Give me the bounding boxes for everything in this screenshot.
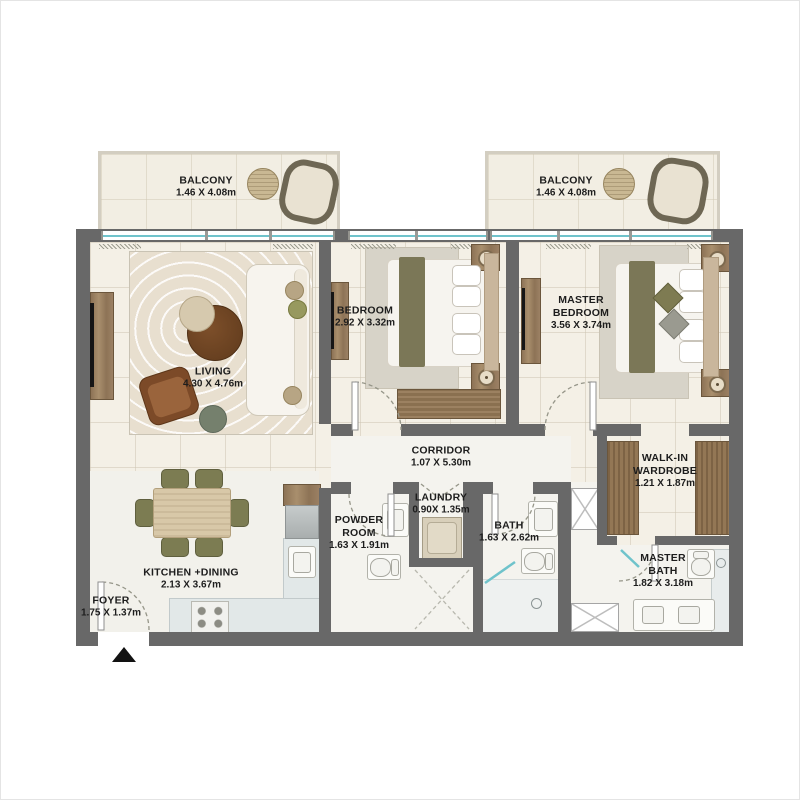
room-dims: 1.46 X 4.08m: [176, 187, 236, 200]
room-dims: 1.07 X 5.30m: [411, 457, 471, 470]
door-swing-overlay: [1, 1, 800, 800]
room-label-master-bedroom: MASTER BEDROOM 3.56 X 3.74m: [548, 294, 614, 332]
room-label-kitchen: KITCHEN +DINING 2.13 X 3.67m: [143, 566, 238, 591]
room-label-bath: BATH 1.63 X 2.62m: [479, 519, 539, 544]
room-dims: 2.13 X 3.67m: [143, 579, 238, 592]
room-label-corridor: CORRIDOR 1.07 X 5.30m: [411, 444, 471, 469]
room-label-walkin: WALK-IN WARDROBE 1.21 X 1.87m: [622, 452, 708, 490]
room-label-bedroom: BEDROOM 2.92 X 3.32m: [335, 304, 395, 329]
room-label-balcony-left: BALCONY 1.46 X 4.08m: [176, 174, 236, 199]
room-name: BALCONY: [176, 174, 236, 187]
room-name: BALCONY: [536, 174, 596, 187]
room-label-foyer: FOYER 1.75 X 1.37m: [81, 594, 141, 619]
room-name: MASTER BEDROOM: [548, 294, 614, 320]
room-dims: 1.63 X 1.91m: [324, 540, 394, 553]
room-name: FOYER: [81, 594, 141, 607]
room-name: LIVING: [183, 365, 243, 378]
room-dims: 2.92 X 3.32m: [335, 317, 395, 330]
room-dims: 1.82 X 3.18m: [626, 578, 700, 591]
room-dims: 1.75 X 1.37m: [81, 607, 141, 620]
room-dims: 0.90X 1.35m: [412, 504, 469, 517]
room-name: KITCHEN +DINING: [143, 566, 238, 579]
room-name: WALK-IN WARDROBE: [622, 452, 708, 478]
room-label-laundry: LAUNDRY 0.90X 1.35m: [412, 491, 469, 516]
master-door-leaf: [590, 382, 596, 430]
duct-void-cross: [415, 570, 469, 629]
room-dims: 1.46 X 4.08m: [536, 187, 596, 200]
room-name: BEDROOM: [335, 304, 395, 317]
room-label-powder: POWDER ROOM 1.63 X 1.91m: [324, 514, 394, 552]
entrance-arrow: [112, 647, 136, 662]
room-name: LAUNDRY: [412, 491, 469, 504]
master-door-arc: [545, 382, 593, 430]
room-name: CORRIDOR: [411, 444, 471, 457]
room-label-master-bath: MASTER BATH 1.82 X 3.18m: [626, 552, 700, 590]
bath-shower-door: [485, 562, 515, 583]
room-name: BATH: [479, 519, 539, 532]
floor-plan: BALCONY 1.46 X 4.08m BALCONY 1.46 X 4.08…: [0, 0, 800, 800]
room-name: MASTER BATH: [626, 552, 700, 578]
room-dims: 3.56 X 3.74m: [548, 320, 614, 333]
bedroom-door-arc: [355, 382, 401, 430]
room-dims: 1.63 X 2.62m: [479, 532, 539, 545]
bedroom-door-leaf: [352, 382, 358, 430]
room-label-living: LIVING 4.30 X 4.76m: [183, 365, 243, 390]
room-dims: 1.21 X 1.87m: [622, 478, 708, 491]
room-label-balcony-right: BALCONY 1.46 X 4.08m: [536, 174, 596, 199]
room-dims: 4.30 X 4.76m: [183, 378, 243, 391]
room-name: POWDER ROOM: [324, 514, 394, 540]
